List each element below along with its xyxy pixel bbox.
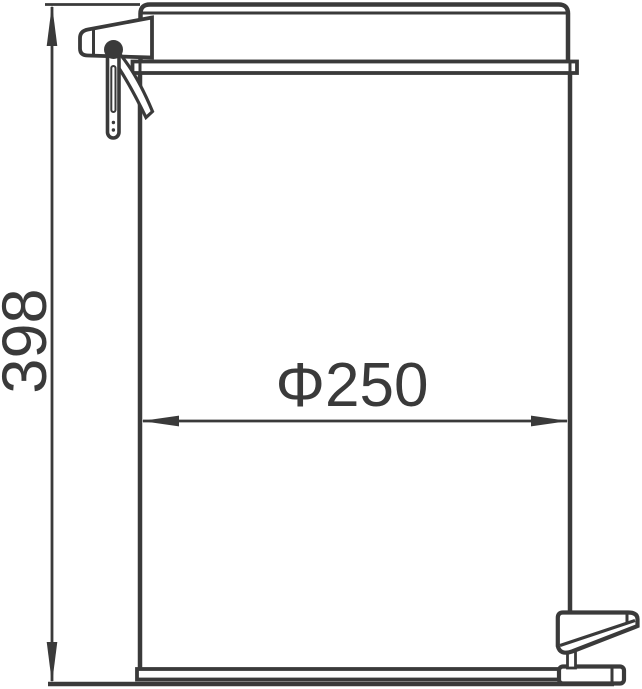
base-plate-outline: [137, 669, 563, 680]
left-arrowhead-icon: [142, 416, 180, 427]
down-arrowhead-icon: [47, 642, 58, 684]
height-dimension-label: 398: [0, 288, 60, 393]
pedal-lever: [558, 613, 638, 653]
bin-lid: [141, 5, 569, 63]
bin-rim: [133, 62, 578, 74]
diameter-dimension-label: Φ250: [276, 351, 429, 420]
diameter-dimension: Φ250: [142, 351, 569, 426]
hinge-rod-dot-upper: [112, 121, 115, 124]
up-arrowhead-icon: [47, 5, 58, 47]
base-plate: [137, 669, 563, 680]
pedal-bin-technical-drawing: 398 Φ250: [0, 0, 642, 689]
hinge-rod-dot-lower: [112, 128, 115, 131]
rim-band: [133, 62, 578, 74]
hinge-pivot: [104, 40, 123, 59]
drawing-canvas: 398 Φ250: [0, 0, 642, 689]
right-arrowhead-icon: [531, 416, 569, 427]
hinge-rod: [108, 50, 120, 138]
